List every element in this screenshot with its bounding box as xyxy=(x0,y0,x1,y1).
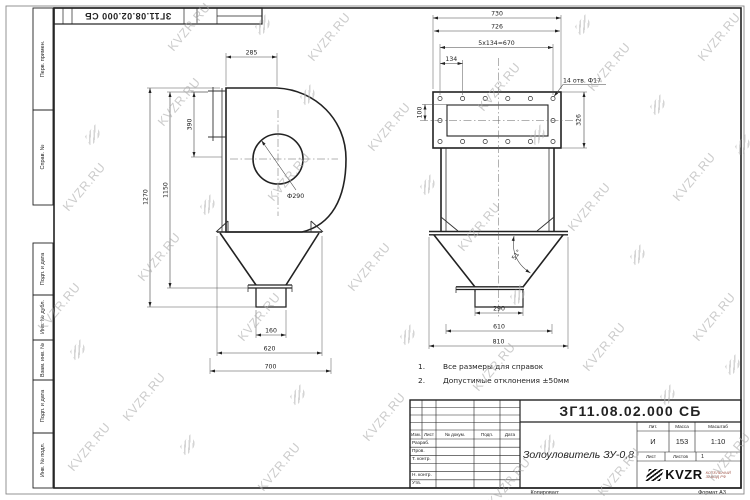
brand-sub-2: ЗАВОД РФ xyxy=(706,475,731,479)
dim-label-holes: 14 отв. Ф17 xyxy=(563,78,601,85)
dim-label-1270: 1270 xyxy=(143,189,150,205)
note-2-num: 2. xyxy=(418,376,425,385)
note-1-text: Все размеры для справок xyxy=(443,362,544,371)
dim-label-160: 160 xyxy=(265,328,277,335)
dim-label-390: 390 xyxy=(187,119,194,131)
dim-label-285: 285 xyxy=(246,50,258,57)
title-designation: ЗГ11.08.02.000 СБ xyxy=(520,400,741,422)
brand-cell: KVZR КОТЕЛЬНЫЙ ЗАВОД РФ xyxy=(637,461,741,488)
corner-stamp-designation: ЗГ11.08.02.000 СБ xyxy=(72,8,184,24)
dim-label-730: 730 xyxy=(491,11,503,18)
dim-label-726: 726 xyxy=(491,24,503,31)
right-view xyxy=(420,58,578,318)
drawing-canvas: 285 390 1150 1270 Ф290 160 620 700 730 7… xyxy=(0,0,750,500)
note-1-num: 1. xyxy=(418,362,425,371)
dim-label-610: 610 xyxy=(493,324,505,331)
dim-label-1150: 1150 xyxy=(163,182,170,198)
brand-word: KVZR xyxy=(665,467,702,482)
dimensions: 285 390 1150 1270 Ф290 160 620 700 730 7… xyxy=(143,11,607,375)
dim-label-d290: Ф290 xyxy=(287,193,304,200)
kvzr-logo-icon xyxy=(645,469,664,481)
dim-label-620: 620 xyxy=(264,346,276,353)
dim-label-326: 326 xyxy=(576,114,583,126)
side-boxes xyxy=(33,8,53,488)
title-part-name: Золоуловитель ЗУ-0,8 xyxy=(520,422,637,488)
left-view xyxy=(208,87,346,307)
dim-label-100: 100 xyxy=(417,107,424,119)
dim-label-670: 5x134=670 xyxy=(478,40,514,47)
dim-label-810: 810 xyxy=(493,339,505,346)
dim-label-angle: 51° xyxy=(510,248,523,262)
drawing-sheet: 285 390 1150 1270 Ф290 160 620 700 730 7… xyxy=(0,0,750,500)
dim-label-134: 134 xyxy=(445,56,457,63)
dim-label-700: 700 xyxy=(265,364,277,371)
dimension-arrows xyxy=(149,17,586,373)
notes: 1. Все размеры для справок 2. Допустимые… xyxy=(418,362,569,385)
note-2-text: Допустимые отклонения ±50мм xyxy=(443,376,569,385)
dim-label-290: 290 xyxy=(493,306,505,313)
